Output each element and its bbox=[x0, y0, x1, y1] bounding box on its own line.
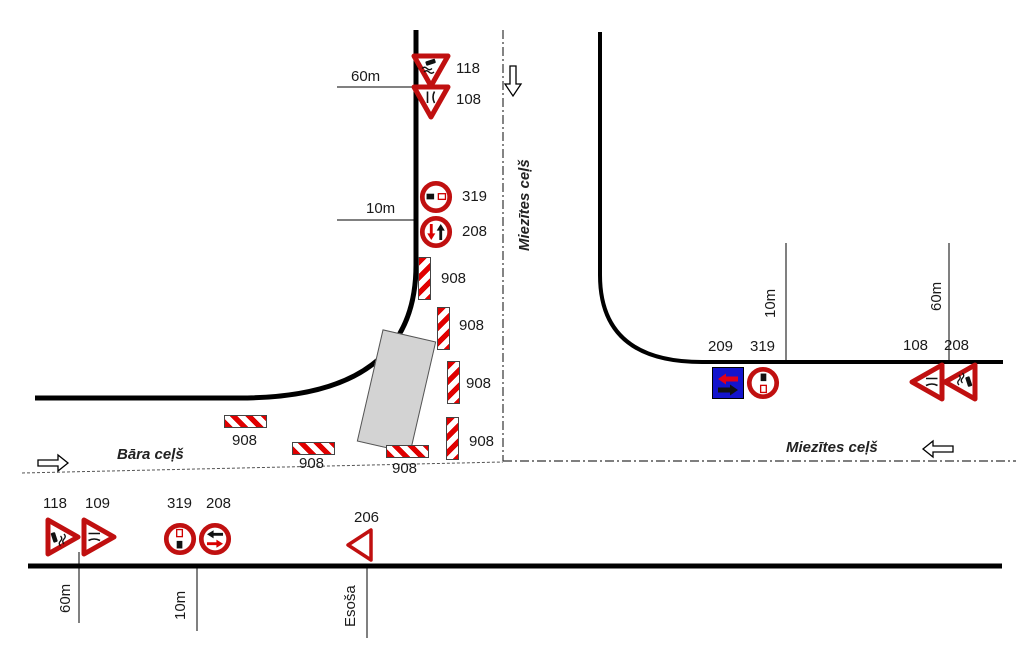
barrier-board-908-v1 bbox=[418, 257, 431, 300]
sign-109-bottom-label: 109 bbox=[85, 496, 110, 511]
sign-108-top-label: 108 bbox=[456, 92, 481, 107]
sign-209-priority-over-oncoming bbox=[712, 367, 744, 399]
road-name-miezites-horizontal: Miezītes ceļš bbox=[786, 440, 878, 455]
barrier-908-label-v4: 908 bbox=[469, 434, 494, 449]
sign-208-right-warning-triangle bbox=[942, 362, 978, 402]
sign-108-right-label: 108 bbox=[903, 338, 928, 353]
road-right-curve bbox=[600, 32, 1003, 362]
bara-road-dashed-line bbox=[22, 462, 503, 473]
barrier-908-label-v2: 908 bbox=[459, 318, 484, 333]
distance-right-60m: 60m bbox=[929, 282, 944, 311]
barrier-board-908-h2 bbox=[292, 442, 335, 455]
sign-319-bottom-label: 319 bbox=[167, 496, 192, 511]
traffic-direction-down-arrow-icon bbox=[505, 66, 521, 96]
distance-right-10m: 10m bbox=[763, 289, 778, 318]
sign-206-label: 206 bbox=[354, 510, 379, 525]
traffic-direction-right-arrow-icon bbox=[38, 455, 68, 471]
sign-208-top-label: 208 bbox=[462, 224, 487, 239]
barrier-908-label-h2: 908 bbox=[299, 456, 324, 471]
sign-118-bottom-warning-triangle bbox=[45, 517, 81, 557]
barrier-board-908-v2 bbox=[437, 307, 450, 350]
sign-319-top-circle bbox=[419, 180, 453, 214]
barrier-908-label-h1: 908 bbox=[232, 433, 257, 448]
road-name-bara: Bāra ceļš bbox=[117, 447, 184, 462]
existing-road-label: Esoša bbox=[343, 585, 358, 627]
roads-layer bbox=[0, 0, 1024, 650]
sign-108-right-warning-triangle bbox=[909, 362, 945, 402]
sign-319-right-label: 319 bbox=[750, 339, 775, 354]
sign-319-top-label: 319 bbox=[462, 189, 487, 204]
barrier-board-908-h1 bbox=[224, 415, 267, 428]
sign-208-bottom-label: 208 bbox=[206, 496, 231, 511]
sign-206-give-way-triangle bbox=[344, 526, 374, 564]
give-way-icon bbox=[348, 530, 371, 560]
sign-209-label: 209 bbox=[708, 339, 733, 354]
barrier-908-label-v1: 908 bbox=[441, 271, 466, 286]
distance-top-60m: 60m bbox=[351, 69, 380, 84]
sign-319-right-circle bbox=[746, 366, 780, 400]
sign-118-top-label: 118 bbox=[456, 61, 480, 76]
distance-bottom-10m: 10m bbox=[173, 591, 188, 620]
sign-208-right-label: 208 bbox=[944, 338, 969, 353]
road-name-miezites-vertical: Miezītes ceļš bbox=[517, 159, 532, 251]
barrier-board-908-h3 bbox=[386, 445, 429, 458]
distance-bottom-60m: 60m bbox=[58, 584, 73, 613]
traffic-scheme-canvas: 118 108 60m 10m 319 208 908 908 908 908 … bbox=[0, 0, 1024, 650]
barrier-908-label-h3: 908 bbox=[392, 461, 417, 476]
traffic-direction-left-arrow-icon bbox=[923, 441, 953, 457]
sign-108-top-warning-triangle bbox=[411, 84, 451, 120]
sign-118-bottom-label: 118 bbox=[43, 496, 67, 511]
sign-208-top-circle bbox=[419, 215, 453, 249]
sign-208-bottom-circle bbox=[198, 522, 232, 556]
sign-319-bottom-circle bbox=[163, 522, 197, 556]
road-left-curve bbox=[35, 30, 416, 398]
distance-top-10m: 10m bbox=[366, 201, 395, 216]
barrier-board-908-v4 bbox=[446, 417, 459, 460]
barrier-908-label-v3: 908 bbox=[466, 376, 491, 391]
barrier-board-908-v3 bbox=[447, 361, 460, 404]
sign-109-bottom-warning-triangle bbox=[81, 517, 117, 557]
